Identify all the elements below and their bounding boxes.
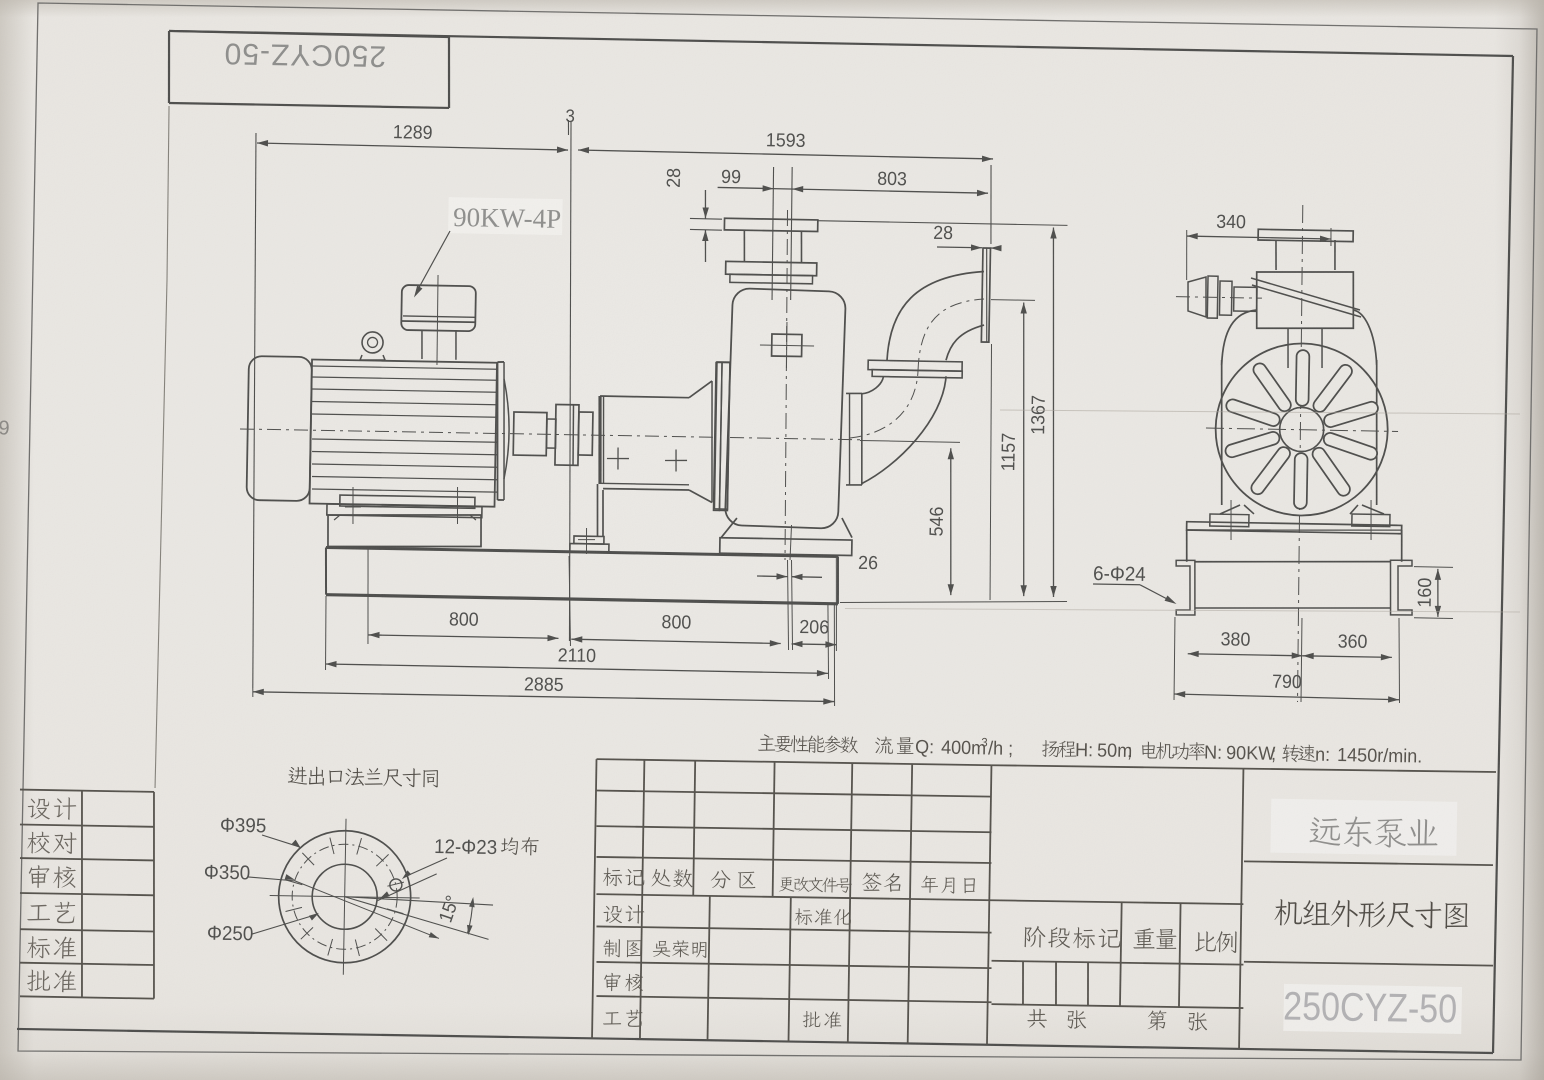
svg-text:800: 800	[449, 608, 479, 630]
svg-text:;: ;	[1127, 740, 1132, 762]
svg-text:15°: 15°	[434, 893, 463, 926]
svg-text:1289: 1289	[393, 121, 433, 143]
svg-text:250CYZ-50: 250CYZ-50	[1283, 983, 1458, 1031]
svg-text:Φ350: Φ350	[204, 861, 251, 884]
svg-text:380: 380	[1220, 628, 1250, 650]
svg-text:803: 803	[877, 167, 907, 189]
svg-text:99: 99	[721, 165, 741, 187]
svg-text:12-Φ23: 12-Φ23	[434, 835, 497, 859]
svg-text:90KW-4P: 90KW-4P	[453, 202, 562, 234]
svg-text:800: 800	[661, 611, 691, 633]
svg-text:Q:: Q:	[915, 736, 934, 758]
svg-text:28: 28	[933, 221, 953, 243]
svg-text:160: 160	[1413, 578, 1435, 608]
svg-text:250CYZ-50: 250CYZ-50	[223, 37, 386, 73]
svg-text:360: 360	[1338, 630, 1368, 652]
svg-text:3: 3	[565, 105, 575, 126]
svg-text:400m: 400m	[941, 736, 986, 758]
svg-text:28: 28	[662, 168, 684, 188]
svg-text:1367: 1367	[1027, 395, 1049, 435]
svg-text:1593: 1593	[766, 129, 806, 151]
svg-text:Φ250: Φ250	[207, 922, 254, 945]
svg-text:H:: H:	[1075, 739, 1093, 761]
svg-text:Φ395: Φ395	[220, 814, 267, 837]
svg-text:790: 790	[1272, 670, 1302, 692]
svg-text:;: ;	[1271, 742, 1276, 764]
svg-text:9: 9	[0, 417, 10, 439]
svg-text:340: 340	[1216, 210, 1246, 232]
svg-text:1157: 1157	[997, 433, 1019, 472]
svg-text:90KW: 90KW	[1226, 741, 1276, 763]
svg-text:6-Φ24: 6-Φ24	[1093, 562, 1146, 586]
svg-text:2110: 2110	[558, 644, 597, 666]
svg-text:3: 3	[981, 736, 988, 749]
svg-text:1450r/min.: 1450r/min.	[1337, 744, 1423, 767]
svg-text:26: 26	[858, 551, 878, 573]
svg-text:546: 546	[925, 506, 947, 536]
svg-text:206: 206	[799, 616, 829, 638]
svg-text:/h: /h	[988, 737, 1003, 759]
svg-text:n:: n:	[1315, 743, 1330, 765]
svg-text:2885: 2885	[524, 673, 564, 695]
svg-text:N:: N:	[1204, 741, 1222, 763]
svg-text:;: ;	[1008, 737, 1013, 759]
